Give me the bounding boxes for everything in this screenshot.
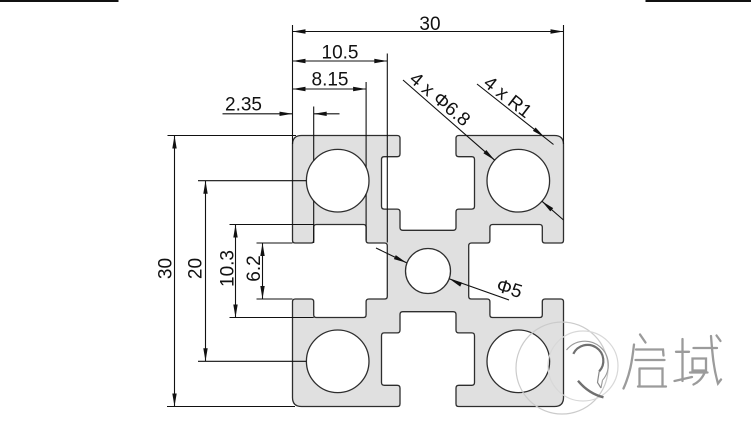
svg-text:10.5: 10.5 — [322, 43, 359, 64]
svg-text:30: 30 — [419, 14, 440, 35]
svg-text:6.2: 6.2 — [244, 255, 265, 281]
svg-text:10.3: 10.3 — [218, 250, 239, 287]
svg-text:20: 20 — [186, 258, 207, 279]
svg-text:30: 30 — [156, 258, 177, 279]
svg-text:8.15: 8.15 — [312, 70, 349, 91]
svg-text:2.35: 2.35 — [225, 95, 262, 116]
